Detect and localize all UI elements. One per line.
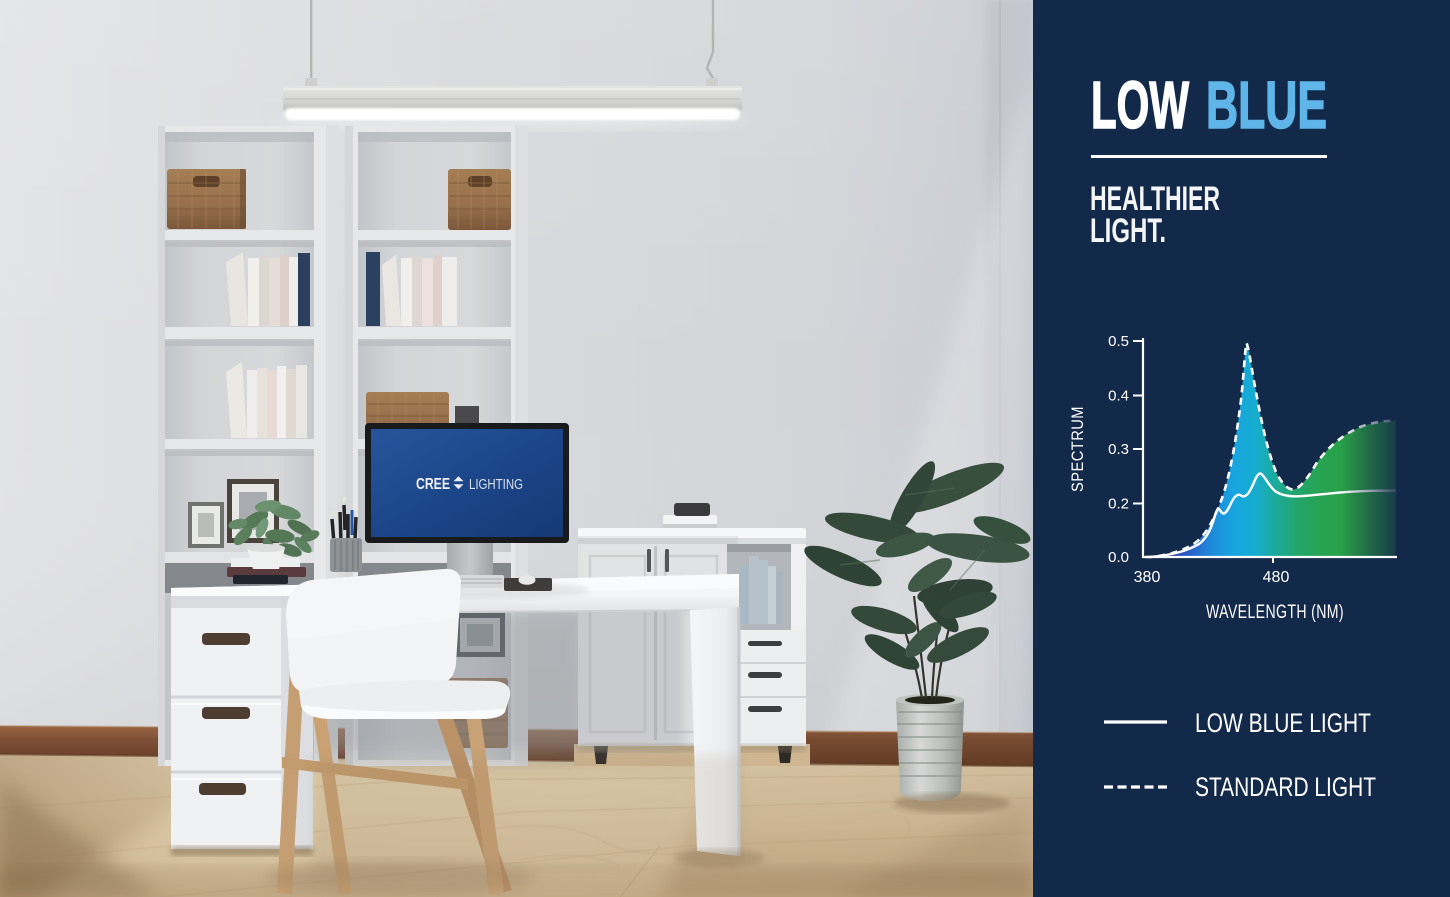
svg-text:0.3: 0.3 (1108, 441, 1129, 458)
svg-text:BLUE: BLUE (1206, 68, 1327, 143)
svg-text:0.0: 0.0 (1108, 549, 1129, 566)
svg-text:480: 480 (1263, 569, 1290, 586)
svg-text:LOW: LOW (1091, 68, 1189, 143)
svg-text:0.2: 0.2 (1108, 496, 1129, 513)
svg-text:CREE: CREE (416, 476, 450, 493)
svg-text:STANDARD LIGHT: STANDARD LIGHT (1195, 772, 1376, 802)
svg-text:0.4: 0.4 (1108, 388, 1129, 405)
svg-text:SPECTRUM: SPECTRUM (1068, 406, 1087, 492)
svg-text:LOW BLUE LIGHT: LOW BLUE LIGHT (1195, 708, 1371, 738)
svg-text:380: 380 (1134, 569, 1161, 586)
svg-text:LIGHTING: LIGHTING (469, 477, 523, 493)
svg-text:LIGHT.: LIGHT. (1090, 212, 1166, 250)
svg-text:WAVELENGTH (NM): WAVELENGTH (NM) (1206, 602, 1344, 623)
svg-text:0.5: 0.5 (1108, 333, 1129, 350)
